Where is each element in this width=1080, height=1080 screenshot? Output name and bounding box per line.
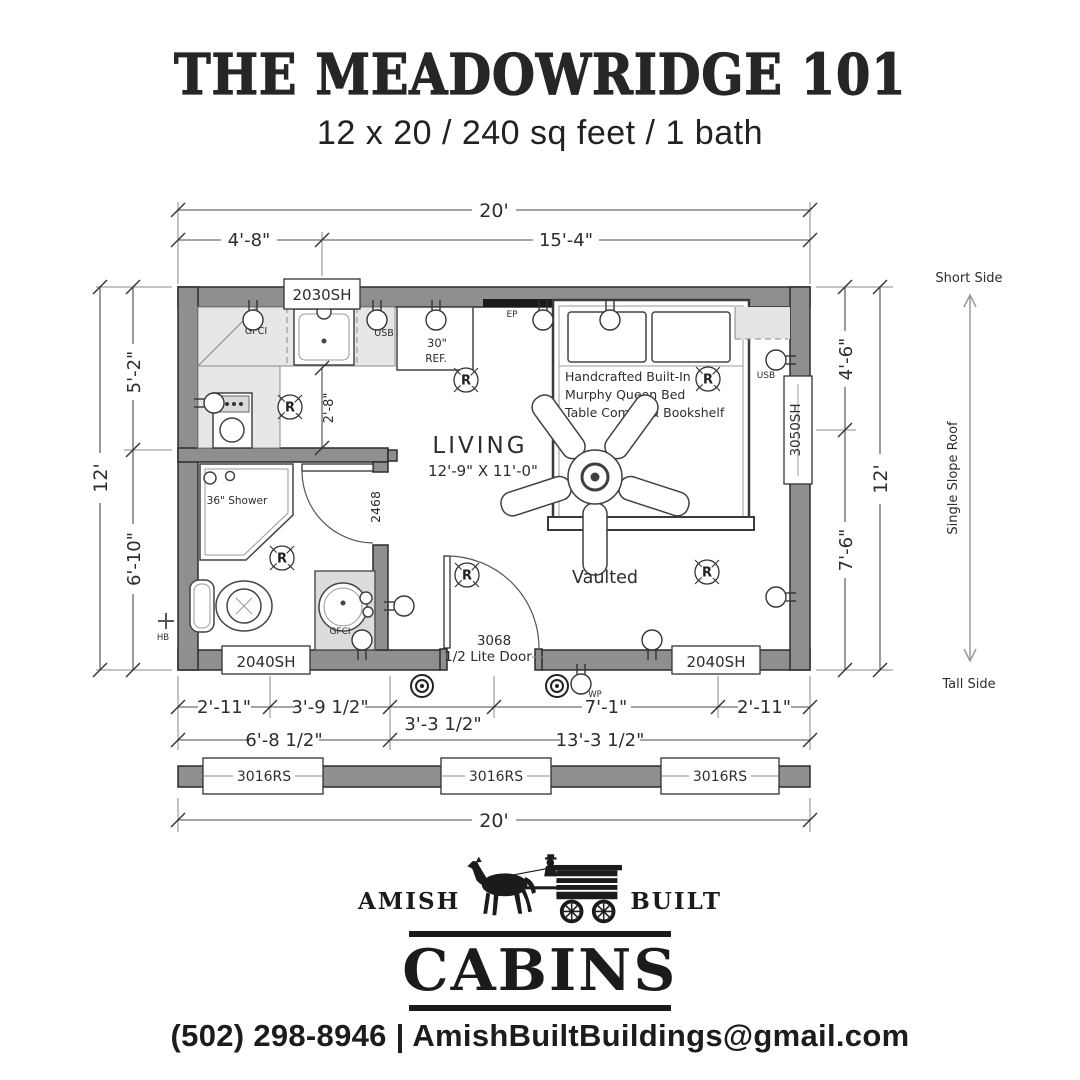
window-bottom-right: 2040SH — [672, 646, 760, 674]
dim-left-overall: 12' — [90, 463, 112, 492]
dim-bottom-overall: 20' — [479, 810, 508, 832]
dimension-right: 4'-6" 7'-6" 12' — [816, 280, 893, 677]
recessed-light-letter: R — [462, 569, 472, 584]
dim-b1-s4: 7'-1" — [585, 697, 628, 718]
ref-label: REF. — [425, 353, 447, 365]
dimension-left: 12' 5'-2" 6'-10" — [88, 280, 172, 677]
slope-label: Single Slope Roof — [946, 421, 961, 535]
transom-label-1: 3016RS — [237, 769, 291, 785]
brand-main-text: CABINS — [402, 940, 677, 1002]
entry-door-size: 3068 — [477, 633, 511, 649]
dim-right-overall: 12' — [870, 464, 892, 493]
window-right: 3050SH — [784, 376, 812, 484]
recessed-light: R — [270, 546, 294, 570]
window-top: 2030SH — [284, 279, 360, 309]
living-label: LIVING — [432, 433, 527, 459]
window-right-label: 3050SH — [788, 403, 804, 456]
contact-info: (502) 298-8946 | AmishBuiltBuildings@gma… — [0, 1018, 1080, 1054]
tall-side-label: Tall Side — [941, 677, 995, 692]
dim-b1-s5: 2'-11" — [737, 697, 791, 718]
vaulted-label: Vaulted — [572, 568, 638, 588]
recessed-light-letter: R — [277, 552, 287, 567]
dim-right-seg2: 7'-6" — [836, 529, 857, 572]
bath-door: 2468 — [302, 464, 383, 543]
dimension-bottom: 2'-11" 3'-9 1/2" 3'-3 1/2" 7'-1" 2'-11" … — [171, 676, 817, 751]
counter-depth-label: 2'-8" — [322, 393, 337, 424]
living-size-label: 12'-9" X 11'-0" — [428, 462, 538, 480]
recessed-light: R — [695, 560, 719, 584]
hose-bib: HB — [157, 613, 174, 643]
dimension-top: 20' 4'-8" 15'-4" — [171, 199, 817, 284]
recessed-light: R — [278, 395, 302, 419]
dim-right-seg1: 4'-6" — [836, 338, 857, 381]
dim-top-seg1: 4'-8" — [228, 230, 271, 251]
window-top-label: 2030SH — [293, 286, 352, 304]
toilet — [190, 580, 272, 632]
recessed-light: R — [455, 563, 479, 587]
recessed-light-letter: R — [702, 566, 712, 581]
dim-b2-s1: 6'-8 1/2" — [245, 730, 322, 751]
brand-left-text: AMISH — [358, 888, 460, 915]
shower: 36" Shower — [200, 464, 293, 560]
window-bottom-right-label: 2040SH — [687, 653, 746, 671]
gfci-bath-label: GFCI — [329, 627, 350, 637]
recessed-light-letter: R — [461, 374, 471, 389]
dim-b1-s1: 2'-11" — [197, 697, 251, 718]
shower-label: 36" Shower — [207, 495, 268, 507]
roof-annotation: Short Side Single Slope Roof Tall Side — [935, 271, 1002, 692]
horse-and-cabin-wagon-icon — [465, 853, 625, 931]
window-bottom-left: 2040SH — [222, 646, 310, 674]
tall-wall-elevation: 3016RS 3016RS 3016RS 20' — [171, 758, 817, 832]
pillow — [652, 312, 730, 362]
dim-left-seg2: 6'-10" — [124, 532, 145, 586]
transom-label-3: 3016RS — [693, 769, 747, 785]
closet-shelf — [735, 307, 790, 339]
transom-window: 3016RS — [203, 758, 323, 794]
dim-left-seg1: 5'-2" — [124, 351, 145, 394]
logo-divider-bottom — [409, 1005, 671, 1011]
short-side-label: Short Side — [935, 271, 1002, 286]
dim-width-overall: 20' — [479, 200, 508, 222]
recessed-light-letter: R — [703, 373, 713, 388]
dim-b1-s2: 3'-9 1/2" — [291, 697, 368, 718]
window-bottom-left-label: 2040SH — [237, 653, 296, 671]
hb-label: HB — [157, 633, 169, 643]
kitchen-sink — [294, 305, 354, 365]
bed-note-line2: Murphy Queen Bed — [565, 387, 685, 402]
transom-window: 3016RS — [441, 758, 551, 794]
ref-width-label: 30" — [427, 336, 447, 350]
counter-depth-dimension: 2'-8" — [315, 361, 337, 455]
recessed-light: R — [696, 367, 720, 391]
porch-light-icon — [546, 675, 568, 697]
porch-light-icon — [411, 675, 433, 697]
dim-b2-s2: 13'-3 1/2" — [556, 730, 645, 751]
dim-b1-s3: 3'-3 1/2" — [404, 714, 481, 735]
bed-note-line1: Handcrafted Built-In — [565, 369, 691, 384]
brand-right-text: BUILT — [630, 888, 722, 915]
transom-window: 3016RS — [661, 758, 779, 794]
transom-label-2: 3016RS — [469, 769, 523, 785]
dim-top-seg2: 15'-4" — [539, 230, 593, 251]
entry-door-type: 1/2 Lite Door — [444, 649, 532, 665]
recessed-light-letter: R — [285, 401, 295, 416]
usb-right-label: USB — [757, 371, 775, 381]
bath-door-label: 2468 — [368, 491, 383, 523]
recessed-light: R — [454, 368, 478, 392]
brand-logo: AMISH — [0, 856, 1080, 1014]
ep-label: EP — [506, 310, 518, 320]
